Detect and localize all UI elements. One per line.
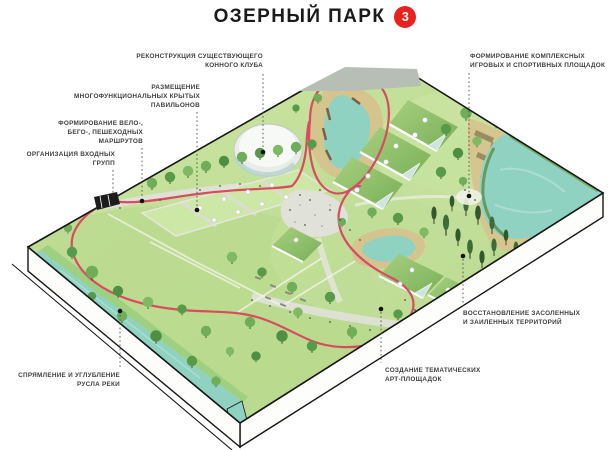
callout-entrance: ОРГАНИЗАЦИЯ ВХОДНЫХ ГРУПП [27, 150, 115, 168]
callout-line: РУСЛА РЕКИ [18, 380, 120, 389]
callout-art: СОЗДАНИЕ ТЕМАТИЧЕСКИХ АРТ-ПЛОЩАДОК [385, 366, 481, 384]
callout-line: СПРЯМЛЕНИЕ И УГЛУБЛЕНИЕ [18, 371, 120, 380]
callout-line: АРТ-ПЛОЩАДОК [385, 375, 481, 384]
masterplan-diagram: ОЗЕРНЫЙ ПАРК 3 РЕКОНСТРУКЦИЯ СУЩЕСТВУЮЩЕ… [0, 0, 610, 450]
callout-routes: ФОРМИРОВАНИЕ ВЕЛО-, БЕГО-, ПЕШЕХОДНЫХ МА… [58, 119, 143, 146]
callout-line: ВОССТАНОВЛЕНИЕ ЗАСОЛЕННЫХ [463, 309, 580, 318]
callout-line: ФОРМИРОВАНИЕ ВЕЛО-, [58, 119, 143, 128]
callout-line: ФОРМИРОВАНИЕ КОМПЛЕКСНЫХ [470, 52, 605, 61]
leader-dot-restore [461, 254, 466, 259]
callout-line: ИГРОВЫХ И СПОРТИВНЫХ ПЛОЩАДОК [470, 61, 605, 70]
leader-dot-art [379, 307, 384, 312]
callout-reconstruction: РЕКОНСТРУКЦИЯ СУЩЕСТВУЮЩЕГО КОННОГО КЛУБ… [136, 52, 263, 70]
page-title: ОЗЕРНЫЙ ПАРК [214, 6, 386, 28]
callout-line: ПАВИЛЬОНОВ [74, 101, 200, 110]
callout-line: БЕГО-, ПЕШЕХОДНЫХ [58, 128, 143, 137]
callout-line: КОННОГО КЛУБА [136, 61, 263, 70]
callout-line: ОРГАНИЗАЦИЯ ВХОДНЫХ [27, 150, 115, 159]
callout-line: ГРУПП [27, 159, 115, 168]
leader-dot-river [118, 309, 123, 314]
leader-dot-routes [140, 199, 145, 204]
callout-line: МНОГОФУНКЦИОНАЛЬНЫХ КРЫТЫХ [74, 92, 200, 101]
number-badge: 3 [394, 6, 416, 28]
callout-line: МАРШРУТОВ [58, 137, 143, 146]
callout-line: РАЗМЕЩЕНИЕ [74, 83, 200, 92]
callout-river: СПРЯМЛЕНИЕ И УГЛУБЛЕНИЕ РУСЛА РЕКИ [18, 371, 120, 389]
callout-pavilions: РАЗМЕЩЕНИЕ МНОГОФУНКЦИОНАЛЬНЫХ КРЫТЫХ ПА… [74, 83, 200, 110]
callout-restore: ВОССТАНОВЛЕНИЕ ЗАСОЛЕННЫХ И ЗАИЛЕННЫХ ТЕ… [463, 309, 580, 327]
callout-sport: ФОРМИРОВАНИЕ КОМПЛЕКСНЫХ ИГРОВЫХ И СПОРТ… [470, 52, 605, 70]
leader-dot-sport [467, 194, 472, 199]
callout-line: РЕКОНСТРУКЦИЯ СУЩЕСТВУЮЩЕГО [136, 52, 263, 61]
callout-line: СОЗДАНИЕ ТЕМАТИЧЕСКИХ [385, 366, 481, 375]
leader-dot-reconstruction [261, 150, 266, 155]
header: ОЗЕРНЫЙ ПАРК 3 [0, 6, 610, 28]
leader-dot-pavilions [195, 208, 200, 213]
callout-line: И ЗАИЛЕННЫХ ТЕРРИТОРИЙ [463, 318, 580, 327]
